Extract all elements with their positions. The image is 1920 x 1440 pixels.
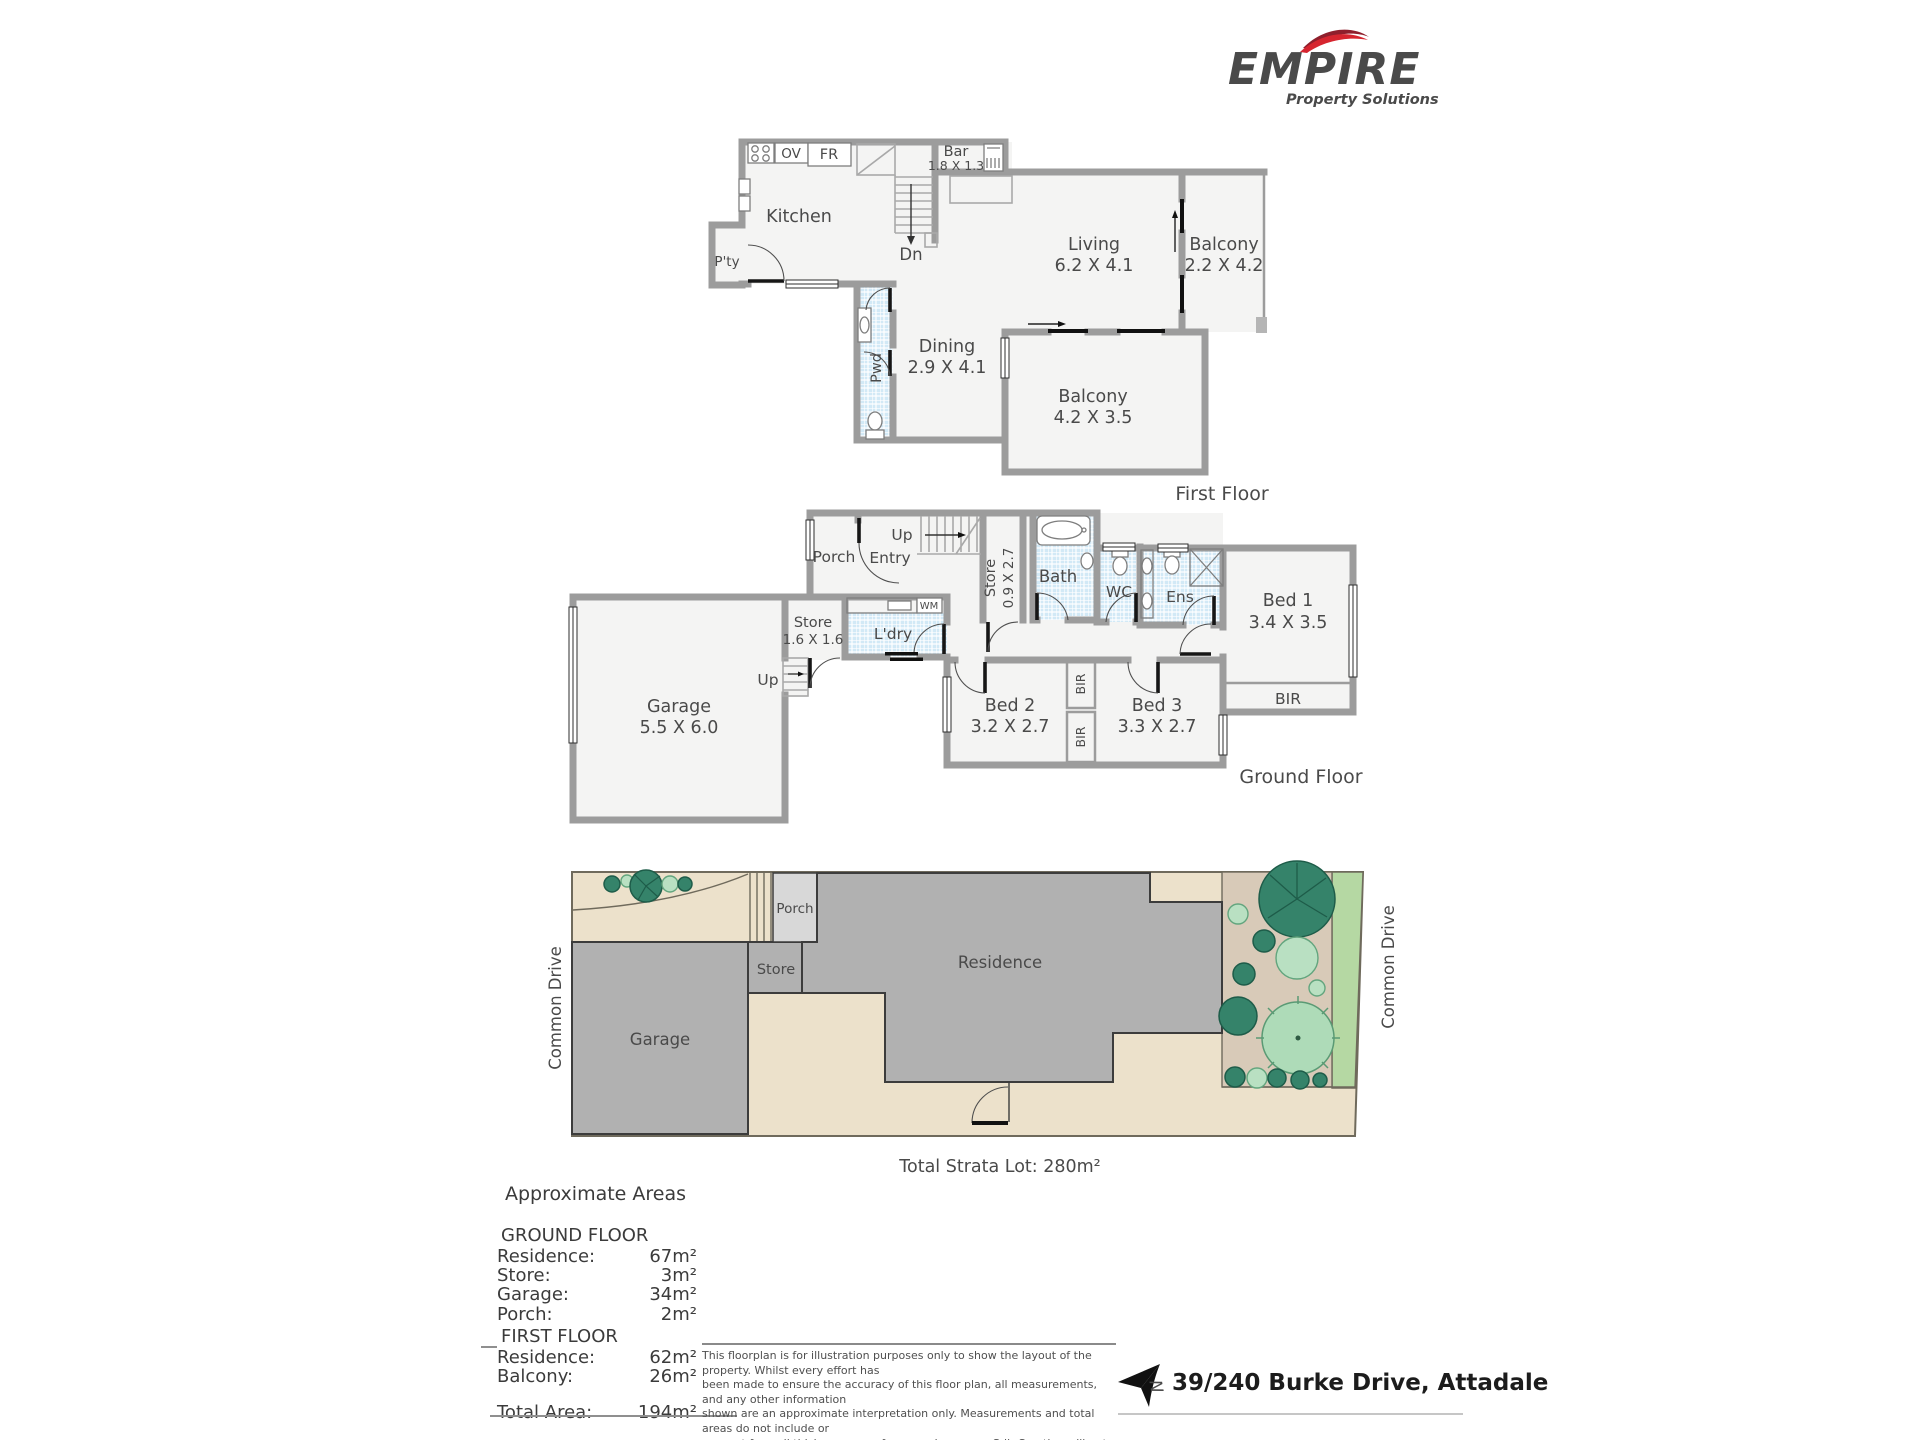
svg-text:N: N: [1144, 1378, 1166, 1394]
wc-label: WC: [1106, 583, 1132, 601]
site-residence-label: Residence: [958, 953, 1042, 972]
ground-floor-plan: Porch Up Entry Store 0.9 X 2.7 Bath WC E…: [555, 495, 1385, 805]
laundry-trough: [888, 601, 911, 610]
bed2-label: Bed 2: [985, 696, 1036, 716]
bed3-label: Bed 3: [1132, 696, 1183, 716]
site-porch-label: Porch: [776, 901, 813, 917]
living-label: Living: [1068, 235, 1120, 255]
area-total-label: Total Area:: [497, 1403, 592, 1422]
up-small-label: Up: [757, 671, 778, 689]
porch-label: Porch: [813, 548, 856, 566]
disclaimer: This floorplan is for illustration purpo…: [702, 1343, 1116, 1440]
bed3-dims: 3.3 X 2.7: [1118, 717, 1197, 737]
strata-lot-total: Total Strata Lot: 280m²: [898, 1157, 1100, 1177]
area-label: Porch:: [497, 1305, 553, 1324]
area-row: Garage:34m²: [497, 1285, 697, 1304]
areas-tick: [481, 1346, 497, 1348]
site-garage-label: Garage: [630, 1030, 690, 1049]
areas-ground-heading: GROUND FLOOR: [501, 1225, 697, 1246]
area-label: Store:: [497, 1266, 551, 1285]
ground-floor-title: Ground Floor: [1239, 766, 1362, 788]
pantry-label: P'ty: [714, 254, 739, 270]
bed1-robe-label: BIR: [1275, 690, 1301, 708]
kitchen-label: Kitchen: [766, 207, 832, 227]
store-tall-label: Store: [983, 559, 999, 597]
balcony-corner-post: [1256, 317, 1267, 333]
bath-label: Bath: [1039, 567, 1077, 586]
bed1-label: Bed 1: [1263, 591, 1314, 611]
north-arrow-icon: N: [1116, 1362, 1168, 1408]
area-value: 34m²: [649, 1285, 697, 1304]
area-value: 3m²: [661, 1266, 697, 1285]
fridge-label: FR: [820, 147, 838, 163]
site-plan: Common Drive Common Drive Porch Store Ga…: [520, 855, 1440, 1185]
area-total-row: Total Area:194m²: [497, 1403, 697, 1422]
washing-machine-label: WM: [920, 601, 939, 612]
ground-floor-rooms: [573, 513, 1353, 820]
address-underline: [1118, 1413, 1463, 1415]
area-row: Balcony:26m²: [497, 1367, 697, 1386]
balcony-bottom-label: Balcony: [1058, 387, 1127, 407]
disclaimer-line: This floorplan is for illustration purpo…: [702, 1349, 1116, 1378]
area-row: Porch:2m²: [497, 1305, 697, 1324]
approximate-areas: Approximate Areas GROUND FLOOR Residence…: [497, 1183, 697, 1422]
property-address: 39/240 Burke Drive, Attadale: [1172, 1370, 1548, 1396]
areas-first-heading: FIRST FLOOR: [501, 1326, 697, 1347]
area-label: Residence:: [497, 1247, 595, 1266]
common-drive-right-label: Common Drive: [1379, 905, 1398, 1029]
area-label: Residence:: [497, 1348, 595, 1367]
laundry-slider: [885, 652, 918, 656]
logo-tagline: Property Solutions: [1286, 92, 1439, 108]
area-value: 67m²: [649, 1247, 697, 1266]
area-row: Store:3m²: [497, 1266, 697, 1285]
site-store-label: Store: [757, 962, 795, 978]
garage-dims: 5.5 X 6.0: [640, 718, 719, 738]
wc-toilet: [1113, 557, 1127, 575]
area-value: 62m²: [649, 1348, 697, 1367]
oven-label: OV: [781, 146, 801, 162]
store-small-dims: 1.6 X 1.6: [783, 632, 844, 648]
entry-label: Entry: [869, 549, 910, 567]
living-dims: 6.2 X 4.1: [1055, 256, 1134, 276]
ensuite-toilet: [1165, 556, 1179, 574]
disclaimer-line: shown are an approximate interpretation …: [702, 1407, 1116, 1436]
floorplan-page: EMPIRE Property Solutions: [0, 0, 1920, 1440]
area-label: Garage:: [497, 1285, 569, 1304]
round-shrub: [1256, 996, 1340, 1080]
store-small-label: Store: [794, 615, 832, 631]
garage-label: Garage: [647, 697, 711, 717]
up-main-label: Up: [891, 526, 912, 544]
areas-underline: [490, 1415, 737, 1417]
bed2-robe-label: BIR: [1073, 673, 1088, 694]
stairs-down-label: Dn: [899, 245, 922, 264]
area-total-value: 194m²: [638, 1403, 697, 1422]
toilet: [868, 412, 882, 430]
balcony-bottom-dims: 4.2 X 3.5: [1054, 408, 1133, 428]
bed2-dims: 3.2 X 2.7: [971, 717, 1050, 737]
common-drive-left-label: Common Drive: [546, 946, 565, 1070]
sink: [739, 179, 750, 194]
bed1-dims: 3.4 X 3.5: [1249, 613, 1328, 633]
area-row: Residence:67m²: [497, 1247, 697, 1266]
area-value: 26m²: [649, 1367, 697, 1386]
disclaimer-line: account for wall thickness or roof area …: [702, 1437, 1116, 1440]
area-row: Residence:62m²: [497, 1348, 697, 1367]
bed3-robe-label: BIR: [1073, 726, 1088, 747]
powder-label: Pwd: [869, 353, 885, 383]
logo-brand: EMPIRE: [1228, 44, 1420, 95]
laundry-label: L'dry: [874, 625, 912, 643]
balcony-right-dims: 2.2 X 4.2: [1185, 256, 1264, 276]
empire-logo: EMPIRE Property Solutions: [1228, 18, 1468, 113]
bath-basin: [1081, 553, 1093, 569]
dining-label: Dining: [919, 337, 976, 357]
area-label: Balcony:: [497, 1367, 573, 1386]
balcony-right-label: Balcony: [1189, 235, 1258, 255]
area-value: 2m²: [661, 1305, 697, 1324]
store-tall-dims: 0.9 X 2.7: [1001, 548, 1017, 609]
disclaimer-line: been made to ensure the accuracy of this…: [702, 1378, 1116, 1407]
areas-heading: Approximate Areas: [505, 1183, 697, 1205]
dining-dims: 2.9 X 4.1: [908, 358, 987, 378]
bar-dims: 1.8 X 1.3: [928, 158, 984, 173]
ensuite-label: Ens: [1166, 588, 1194, 606]
first-floor-plan: Kitchen P'ty OV FR Bar 1.8 X 1.3 Dn Livi…: [690, 120, 1310, 515]
